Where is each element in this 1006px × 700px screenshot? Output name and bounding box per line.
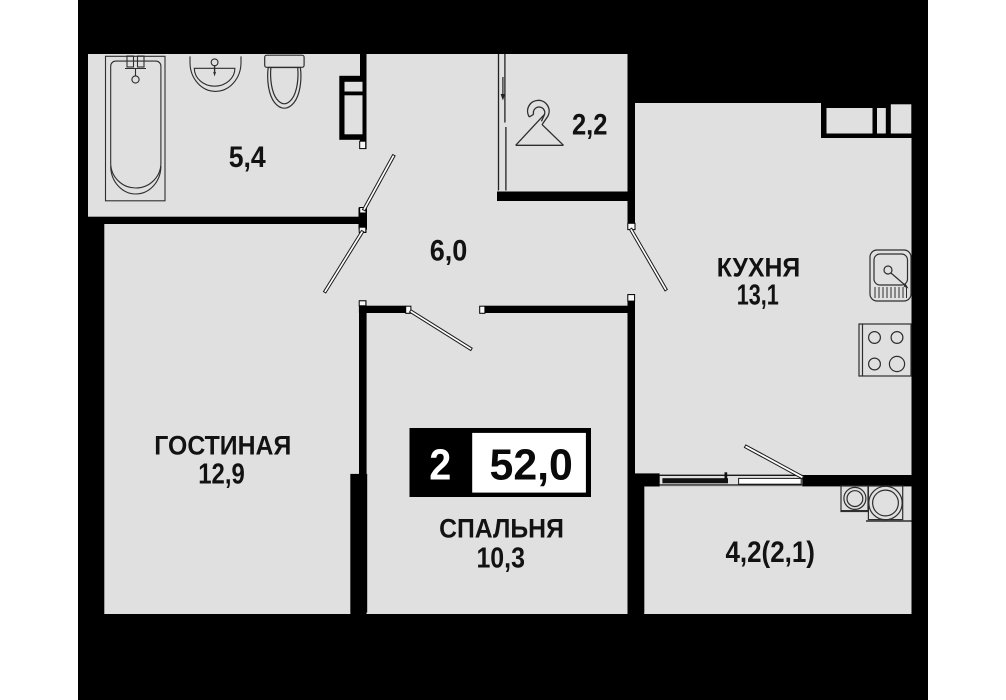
- svg-text:12,9: 12,9: [198, 458, 245, 490]
- svg-text:2: 2: [429, 442, 451, 490]
- svg-text:52,0: 52,0: [490, 442, 573, 490]
- svg-text:КУХНЯ: КУХНЯ: [717, 253, 800, 283]
- svg-text:5,4: 5,4: [229, 141, 266, 174]
- svg-text:13,1: 13,1: [737, 279, 779, 311]
- svg-text:ГОСТИНАЯ: ГОСТИНАЯ: [154, 431, 291, 461]
- svg-text:2,2: 2,2: [572, 108, 608, 141]
- svg-text:4,2(2,1): 4,2(2,1): [725, 536, 815, 569]
- svg-text:6,0: 6,0: [430, 235, 468, 268]
- svg-text:10,3: 10,3: [476, 543, 525, 575]
- svg-text:СПАЛЬНЯ: СПАЛЬНЯ: [439, 514, 564, 544]
